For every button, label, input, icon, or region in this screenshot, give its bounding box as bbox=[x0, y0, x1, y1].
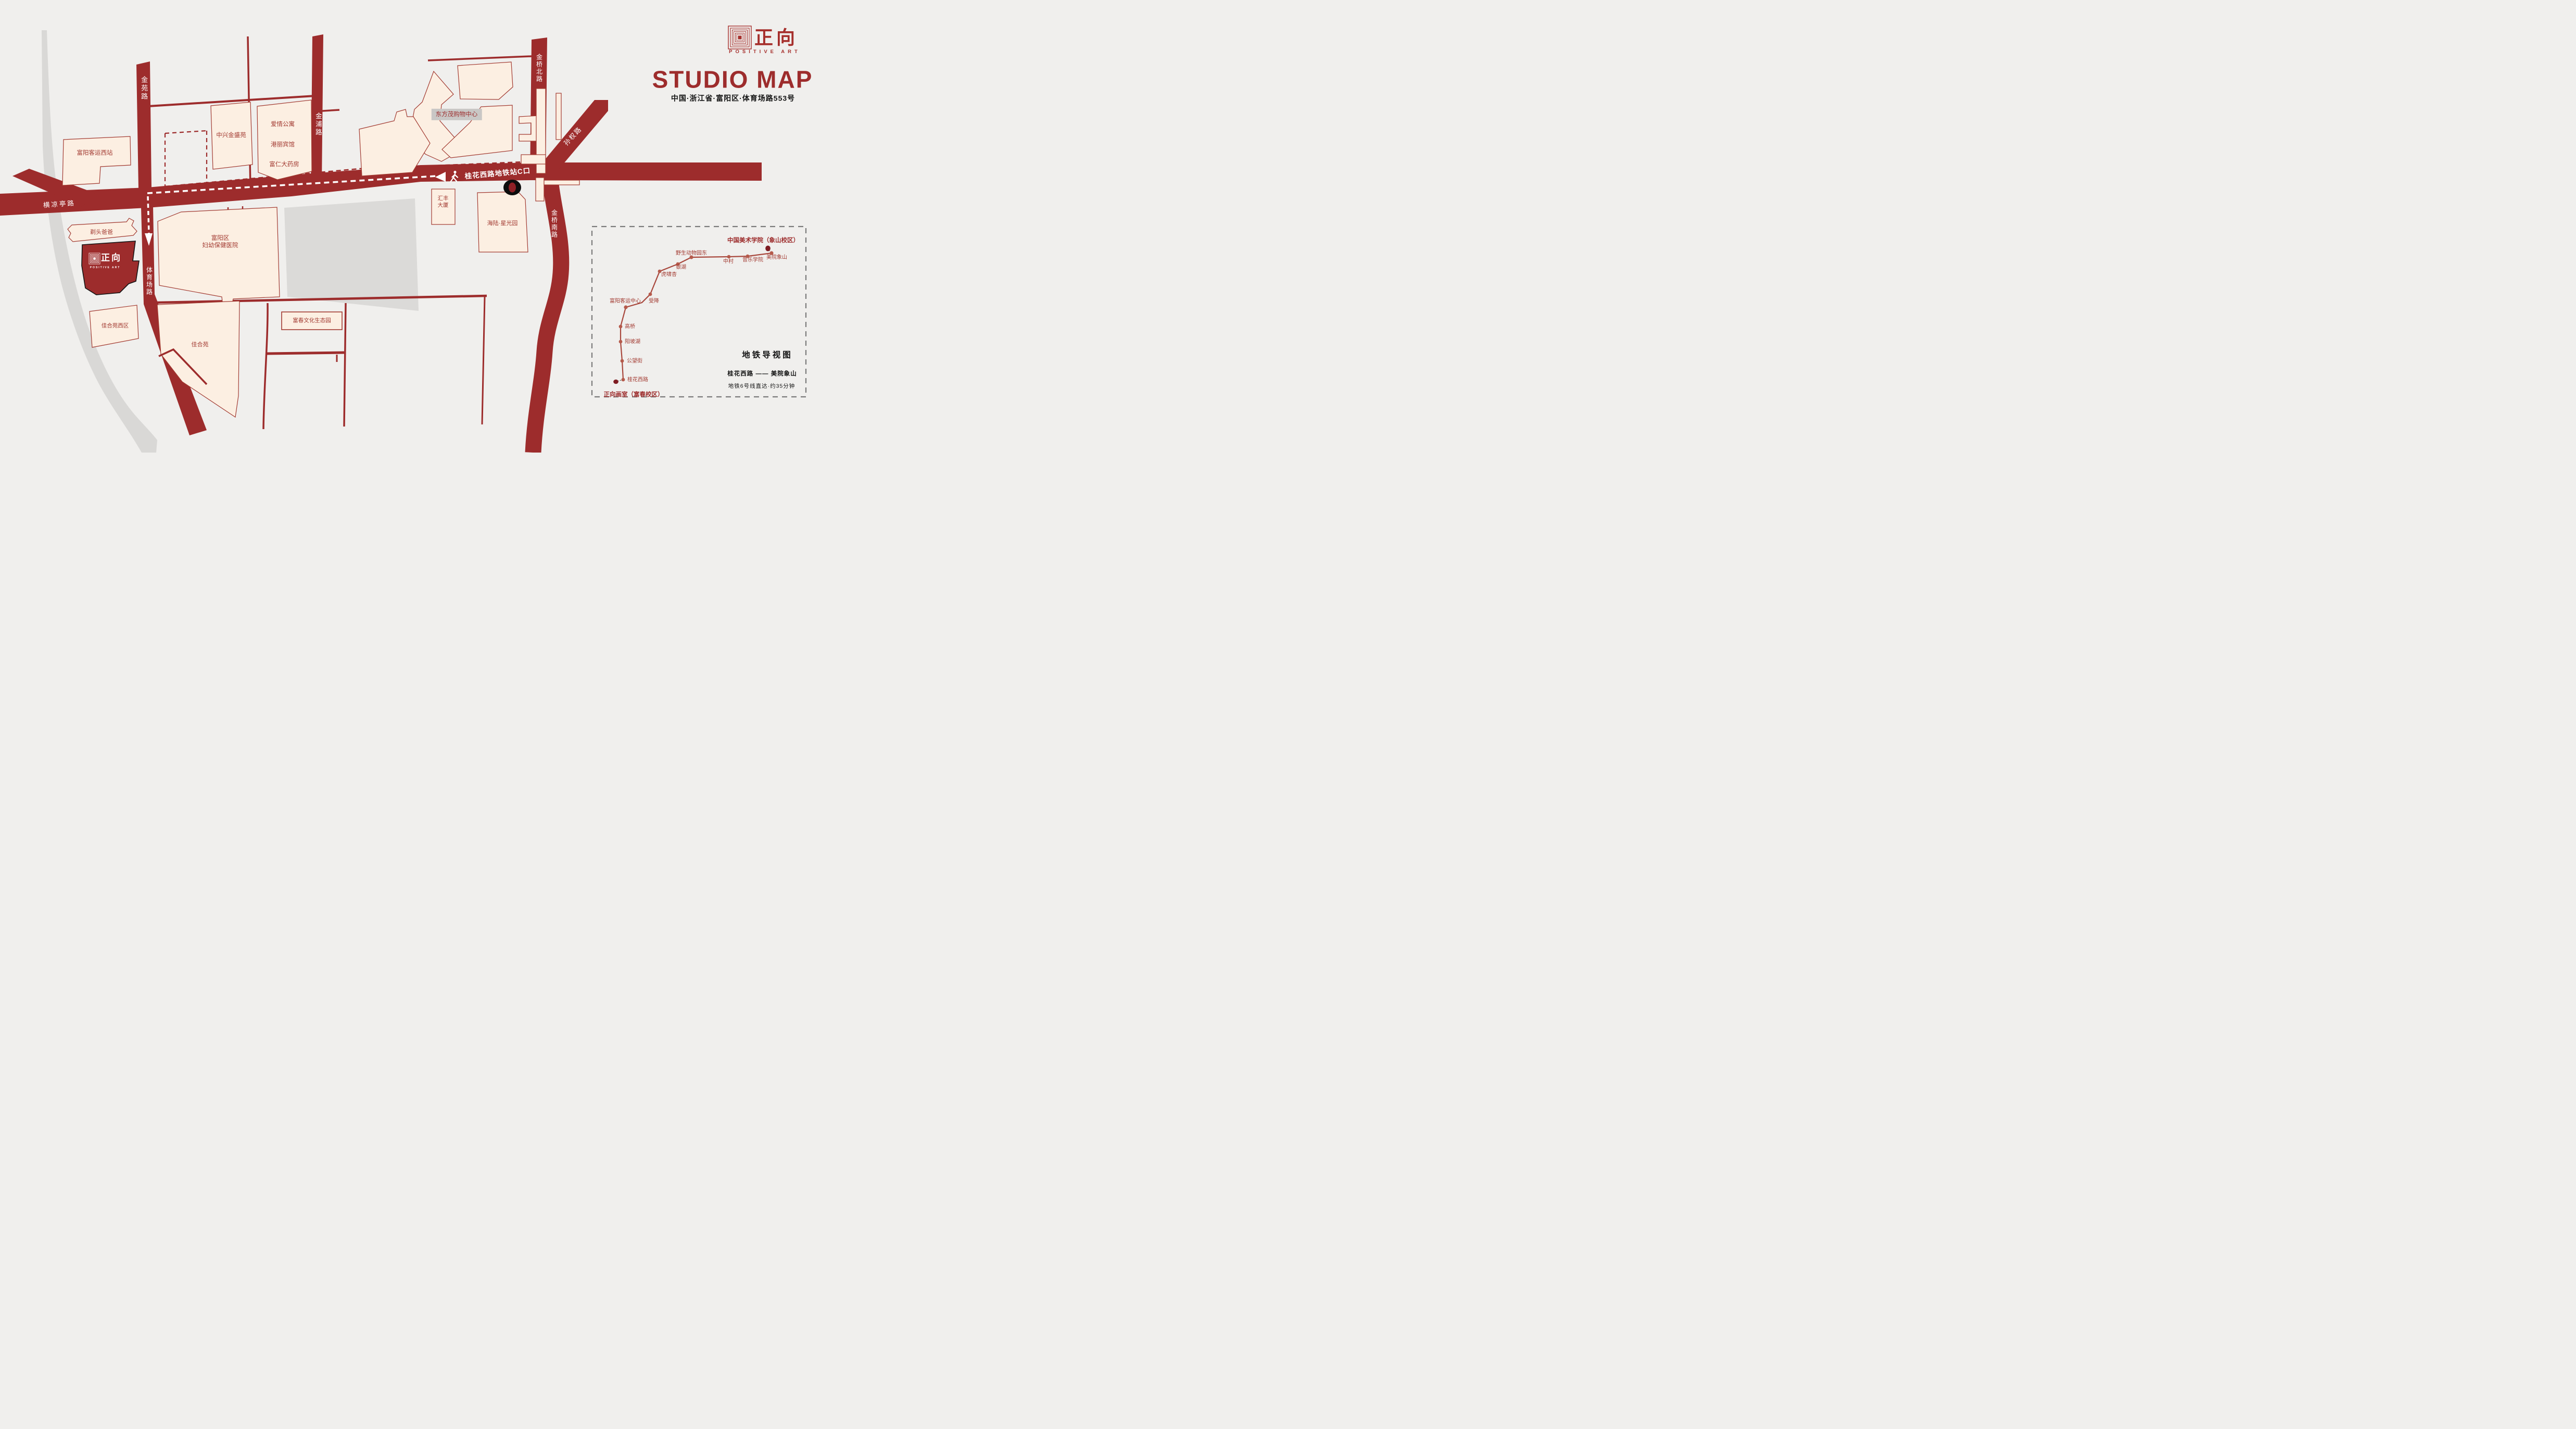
road-label-jinyuan: 金苑路 bbox=[140, 76, 148, 101]
studio-map-poster: 正向 POSITIVE ART STUDIO MAP 中国·浙江省·富阳区·体育… bbox=[0, 0, 816, 453]
label-fuchun-eco-park: 富春文化生态园 bbox=[293, 317, 331, 324]
label-zhongxing-jinsheng: 中兴金盛苑 bbox=[216, 132, 246, 139]
station-label-zhongcun: 中村 bbox=[723, 259, 734, 266]
overpass-strip bbox=[556, 93, 561, 140]
studio-address: 中国·浙江省·富阳区·体育场路553号 bbox=[671, 94, 795, 103]
building-hospital bbox=[158, 207, 280, 306]
building-jiaheyuan bbox=[157, 301, 239, 417]
label-dongfangmao-mall: 东方茂购物中心 bbox=[432, 109, 482, 120]
metro-panel-title: 地铁导视图 bbox=[742, 350, 793, 360]
metro-duration: 地铁6号线直达·约35分钟 bbox=[728, 383, 795, 390]
road-label-jinpu: 金浦路 bbox=[313, 112, 322, 137]
label-aiqing-apartment: 爱情公寓 bbox=[271, 121, 295, 128]
studio-brand-cn: 正向 bbox=[101, 253, 122, 264]
label-huifeng-line1: 汇丰 bbox=[438, 195, 449, 202]
overpass-strip bbox=[521, 155, 546, 164]
road-label-jinqiao-north: 金桥北路 bbox=[535, 54, 543, 83]
station-label-guihuaxilu: 桂花西路 bbox=[627, 377, 648, 384]
label-furen-pharmacy: 富仁大药房 bbox=[269, 161, 299, 168]
road-label-tiyuchang: 体育场路 bbox=[145, 267, 153, 296]
brand-name-en: POSITIVE ART bbox=[729, 49, 801, 55]
overpass-strip bbox=[544, 180, 579, 185]
station-label-yinyue-xueyuan: 音乐学院 bbox=[742, 257, 763, 264]
station-label-gongwangjie: 公望街 bbox=[627, 358, 642, 365]
label-gangli-hotel: 港丽宾馆 bbox=[271, 141, 295, 148]
metro-route-summary: 桂花西路 —— 美院象山 bbox=[727, 370, 797, 378]
station-label-meiyuan-xiangshan: 美院象山 bbox=[766, 255, 787, 261]
overpass-strip bbox=[536, 178, 544, 201]
station-exit-marker-core bbox=[509, 183, 516, 193]
metro-destination-label: 中国美术学院（象山校区） bbox=[727, 237, 799, 244]
label-hailu-starlight: 海陆·星光园 bbox=[487, 220, 518, 228]
metro-origin-marker bbox=[613, 380, 618, 384]
label-huifeng-line2: 大厦 bbox=[438, 202, 449, 209]
station-label-yesheng-dongwuyuan-east: 野生动物园东 bbox=[676, 250, 707, 257]
metro-origin-label: 正向画室（富春校区） bbox=[604, 391, 664, 398]
station-label-yangpohu: 阳坡湖 bbox=[625, 339, 640, 346]
brand-logo-spiral-icon bbox=[728, 26, 751, 49]
label-fuyang-west-bus-station: 富阳客运西站 bbox=[77, 149, 113, 157]
station-label-yinhu: 银湖 bbox=[676, 265, 686, 271]
label-hospital-line2: 妇幼保健医院 bbox=[203, 242, 238, 249]
label-hospital-line1: 富阳区 bbox=[203, 235, 238, 242]
station-label-huxiaoxing: 虎啸杏 bbox=[661, 272, 677, 279]
station-label-gaoqiao: 高桥 bbox=[625, 324, 635, 331]
label-hospital: 富阳区 妇幼保健医院 bbox=[203, 235, 238, 250]
building-overpass-c bbox=[519, 116, 539, 141]
station-label-fuyang-bus-center: 富阳客运中心 bbox=[610, 298, 641, 305]
building-mall-north bbox=[458, 62, 513, 99]
building-fuyang-west-bus-station bbox=[62, 136, 131, 185]
studio-brand-en: POSITIVE ART bbox=[90, 266, 121, 269]
station-label-shouxiang: 受降 bbox=[649, 298, 659, 305]
label-huifeng-tower: 汇丰 大厦 bbox=[438, 195, 449, 209]
label-jiaheyuan-west: 佳合苑西区 bbox=[102, 322, 129, 329]
page-title: STUDIO MAP bbox=[652, 65, 813, 95]
brand-name-cn: 正向 bbox=[754, 27, 798, 50]
metro-destination-marker bbox=[765, 246, 771, 252]
label-jiaheyuan: 佳合苑 bbox=[192, 342, 209, 349]
gray-block bbox=[284, 198, 419, 311]
road-label-jinqiao-south: 金桥南路 bbox=[550, 209, 558, 239]
label-titou-baba: 剃头爸爸 bbox=[90, 229, 113, 236]
